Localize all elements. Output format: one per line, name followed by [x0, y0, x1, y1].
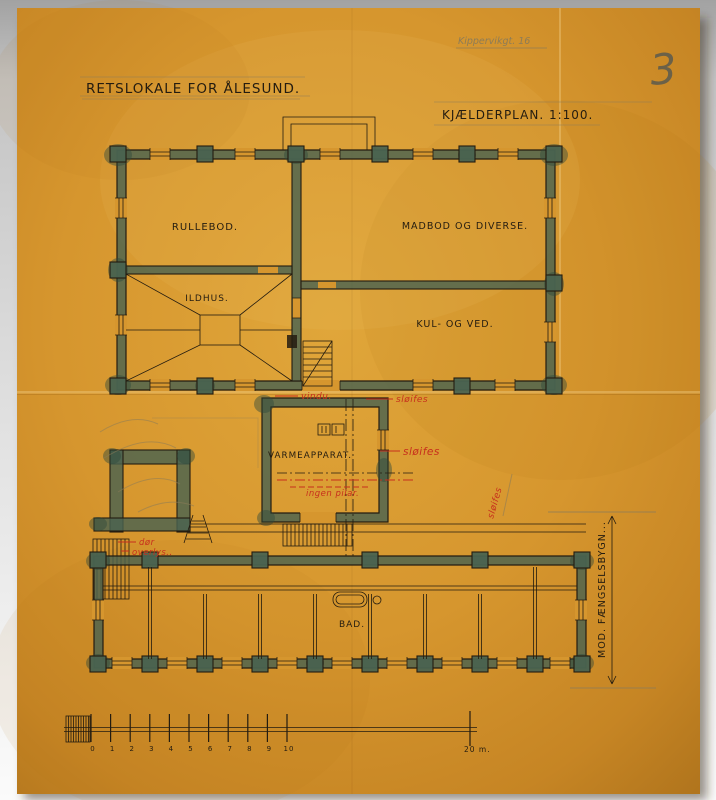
scale-tick-4: 4: [169, 745, 174, 753]
page-title: RETSLOKALE FOR ÅLESUND.: [86, 80, 300, 97]
scale-tick-7: 7: [227, 745, 232, 753]
photo-backdrop: RETSLOKALE FOR ÅLESUND. KJÆLDERPLAN. 1:1…: [0, 0, 716, 800]
room-label-ildhus: ILDHUS.: [185, 294, 229, 304]
annotation-sloifes-heater: sløifes: [403, 446, 440, 458]
sheet-number: 3: [648, 44, 679, 95]
annotation-overlys: overlys..: [132, 548, 173, 558]
annotation-ingen-pilar: ingen pilar.: [306, 489, 359, 499]
scale-tick-0: 0: [90, 745, 95, 753]
scale-end-label: 20 m.: [464, 745, 491, 754]
scale-tick-9: 9: [267, 745, 272, 753]
room-label-varmeapparat: VARMEAPPARAT.: [268, 451, 352, 461]
annotation-sloifes-window: sløifes: [396, 395, 428, 405]
scale-tick-6: 6: [208, 745, 213, 753]
dimension-label: MOD. FÆNGSELSBYGN...: [597, 521, 608, 658]
scale-tick-1: 1: [110, 745, 115, 753]
drawing-sheet-svg: RETSLOKALE FOR ÅLESUND. KJÆLDERPLAN. 1:1…: [0, 0, 716, 800]
scale-tick-3: 3: [149, 745, 154, 753]
chimney-flue: [287, 335, 297, 348]
archive-note: Kippervikgt. 16: [458, 36, 530, 47]
room-label-rullebod: RULLEBOD.: [172, 222, 238, 233]
annotation-vindu: vindu.: [301, 392, 332, 402]
room-label-madbod: MADBOD OG DIVERSE.: [402, 221, 528, 232]
room-label-kul-ved: KUL- OG VED.: [416, 319, 493, 330]
scale-tick-8: 8: [247, 745, 252, 753]
scale-tick-5: 5: [188, 745, 193, 753]
scale-tick-2: 2: [129, 745, 134, 753]
scale-tick-10: 10: [284, 745, 295, 753]
plan-label: KJÆLDERPLAN. 1:100.: [442, 108, 593, 122]
annotation-dor: dør: [139, 538, 155, 548]
room-label-bad: BAD.: [339, 620, 365, 630]
